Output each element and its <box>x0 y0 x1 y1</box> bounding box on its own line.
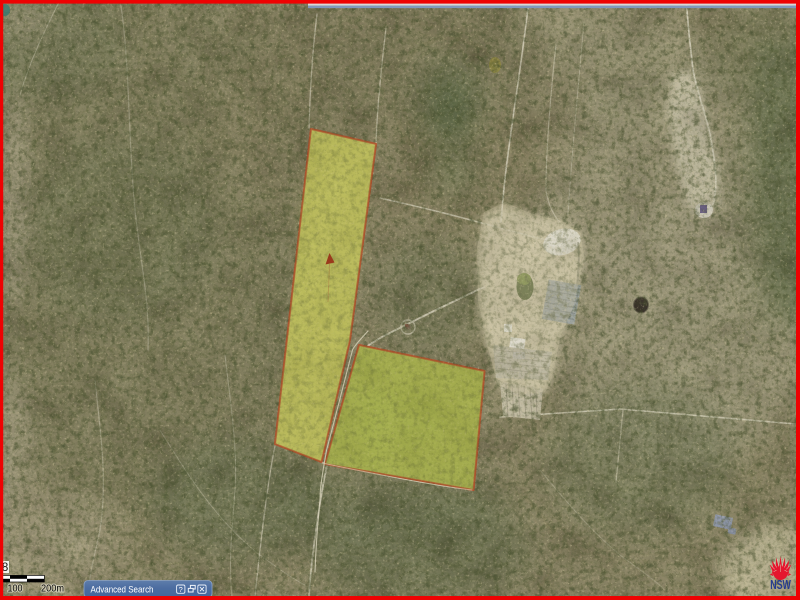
svg-text:NSW: NSW <box>770 577 791 592</box>
svg-text:200m: 200m <box>41 584 64 595</box>
svg-text:Advanced Search: Advanced Search <box>91 585 154 596</box>
svg-text:100: 100 <box>8 584 23 595</box>
svg-text:?: ? <box>179 585 183 594</box>
